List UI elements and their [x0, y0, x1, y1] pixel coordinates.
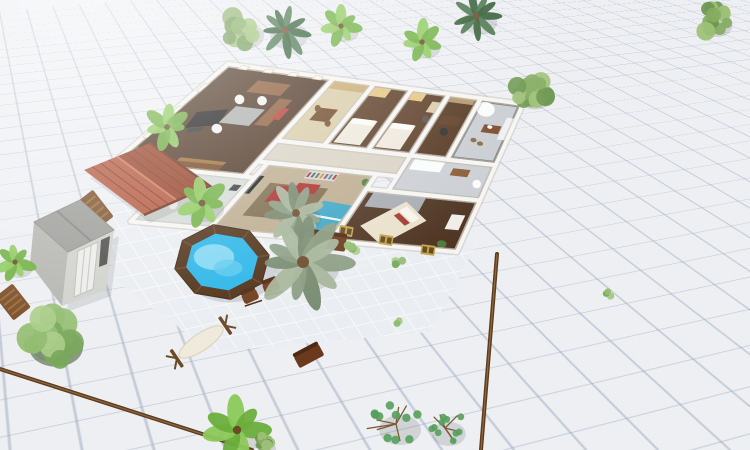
tree-twiggy[interactable] — [367, 401, 422, 445]
leaf-cluster — [722, 18, 733, 29]
twig-leaf — [453, 430, 460, 437]
front-window — [420, 244, 435, 256]
fence-rail — [481, 254, 497, 450]
shrub-leaf — [347, 243, 356, 252]
leaf-cluster — [706, 8, 721, 23]
tree-trunk — [419, 39, 424, 44]
twig-leaf — [392, 411, 400, 419]
tree-trunk — [233, 426, 241, 434]
window-pane — [429, 247, 434, 254]
twig-leaf — [413, 410, 421, 418]
shrub-leaf — [392, 260, 400, 268]
tree-dark-palm[interactable] — [263, 5, 312, 59]
twig-leaf — [391, 436, 399, 444]
twig-leaf — [386, 401, 394, 409]
tree-leafy[interactable] — [255, 432, 276, 450]
leaf-cluster — [233, 17, 246, 30]
shrub-leaf — [605, 288, 612, 295]
tree-trunk — [12, 259, 17, 264]
tree-trunk — [282, 27, 289, 34]
twig-leaf — [371, 411, 379, 419]
tree-trunk — [199, 200, 206, 207]
window-pane — [422, 246, 427, 253]
twig-leaf — [428, 425, 435, 432]
garden-bench[interactable] — [292, 341, 324, 368]
leaf-cluster — [223, 31, 236, 44]
3d-viewport[interactable] — [0, 0, 750, 450]
tree-trunk — [164, 124, 170, 130]
tree-trunk — [338, 23, 343, 28]
leaf-cluster — [536, 87, 555, 106]
twig-leaf — [405, 435, 413, 443]
water-ripple — [214, 260, 243, 277]
twig-leaf — [443, 416, 450, 423]
window-pane — [380, 236, 385, 243]
tree-banana[interactable] — [402, 18, 442, 63]
tree-trunk — [292, 209, 300, 217]
deck-stairs[interactable] — [0, 283, 31, 320]
twig-leaf — [435, 429, 442, 436]
tree-leafy[interactable] — [222, 7, 264, 51]
leaf-cluster — [696, 22, 715, 41]
tree-bush[interactable] — [17, 303, 84, 368]
shrub[interactable] — [603, 288, 614, 299]
tree-leafy[interactable] — [696, 1, 732, 41]
twig-leaf — [457, 413, 464, 420]
tree-dark-palm[interactable] — [453, 0, 502, 41]
leaf-cluster — [51, 350, 70, 369]
tree-trunk — [473, 13, 480, 20]
tree-banana[interactable] — [320, 4, 363, 48]
twig-leaf — [383, 434, 391, 442]
shrub-leaf — [398, 257, 406, 265]
design-canvas[interactable] — [0, 0, 750, 450]
shrub-leaf — [394, 320, 401, 327]
leaf-cluster — [30, 305, 57, 332]
tree-twiggy[interactable] — [428, 413, 465, 446]
twig-leaf — [450, 438, 457, 445]
leaf-cluster — [534, 77, 546, 89]
leaf-cluster — [245, 28, 259, 42]
window-pane — [387, 237, 392, 244]
stairs-base — [0, 283, 31, 320]
twig-leaf — [402, 414, 410, 422]
tree-trunk — [297, 256, 309, 268]
leaf-cluster — [512, 91, 525, 104]
